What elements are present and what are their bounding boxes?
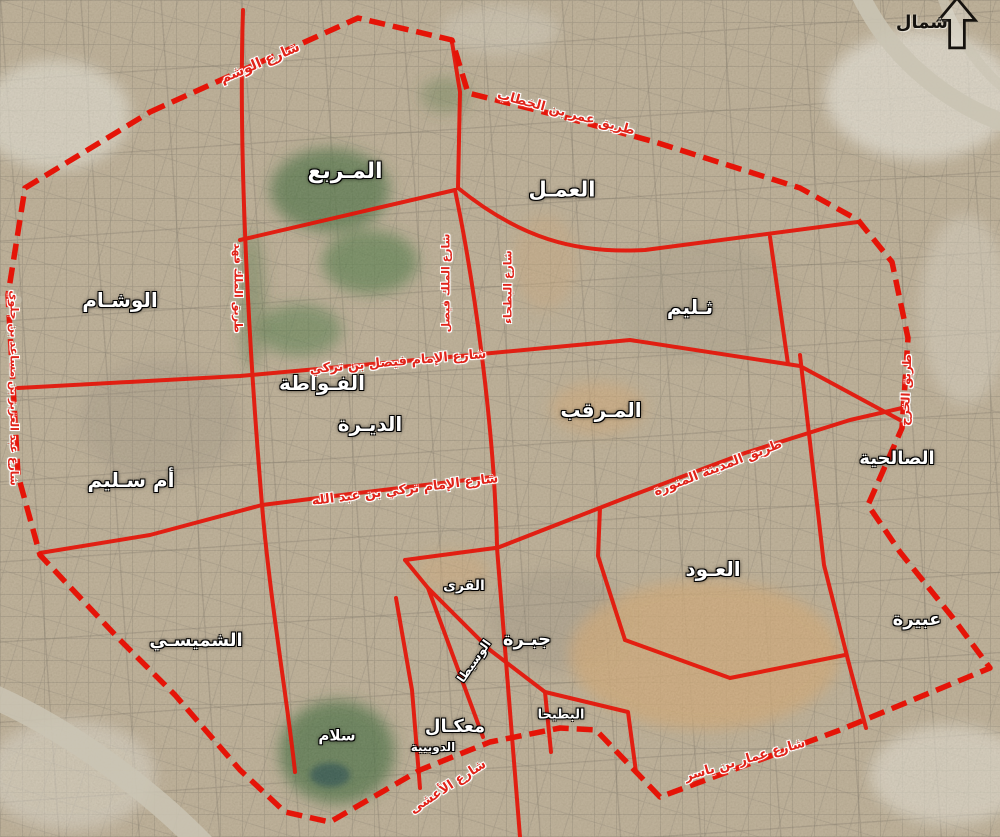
satellite-base-svg <box>0 0 1000 837</box>
compass-label: شمال <box>896 12 948 33</box>
compass: شمال <box>884 0 994 66</box>
satellite-map: المـربعالعمـلالفـواطةالوشـامثـليمالديـرة… <box>0 0 1000 837</box>
